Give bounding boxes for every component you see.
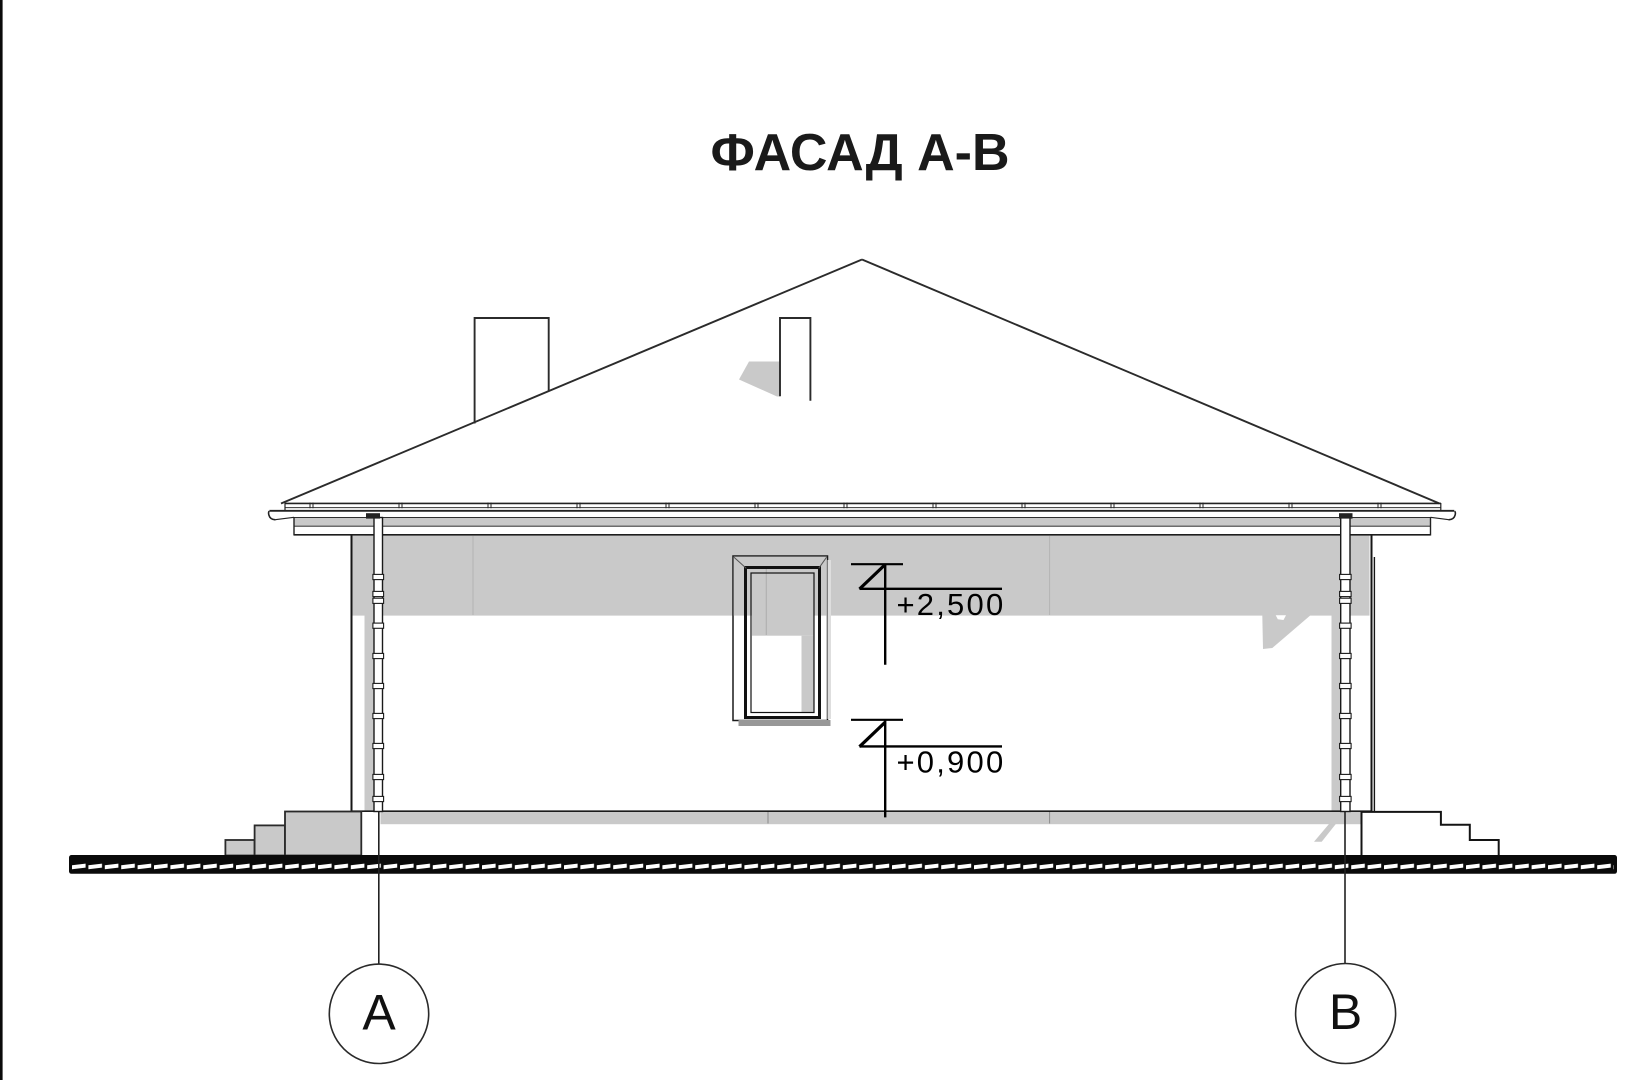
svg-text:В: В xyxy=(1329,984,1362,1040)
svg-text:+0,900: +0,900 xyxy=(897,745,1006,780)
svg-text:+2,500: +2,500 xyxy=(897,587,1006,622)
svg-text:ФАСАД А-В: ФАСАД А-В xyxy=(711,124,1010,182)
svg-text:А: А xyxy=(362,985,396,1041)
